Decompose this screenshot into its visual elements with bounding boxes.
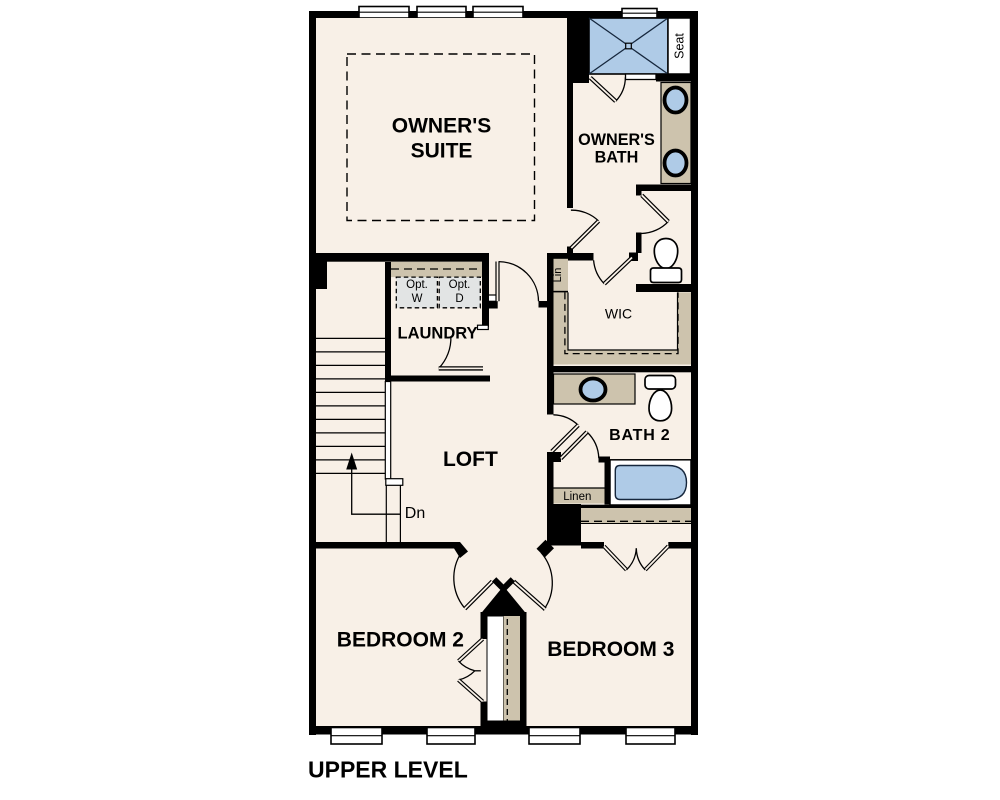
svg-text:BATH 2: BATH 2 <box>609 427 670 444</box>
svg-text:UPPER LEVEL: UPPER LEVEL <box>308 757 468 783</box>
svg-text:Opt.: Opt. <box>406 279 428 291</box>
svg-text:W: W <box>412 293 423 305</box>
svg-text:Opt.: Opt. <box>449 279 471 291</box>
svg-text:OWNER'S: OWNER'S <box>578 131 655 149</box>
svg-text:Dn: Dn <box>405 505 425 522</box>
svg-text:LAUNDRY: LAUNDRY <box>398 325 478 343</box>
svg-text:Lin: Lin <box>552 268 564 283</box>
svg-text:LOFT: LOFT <box>443 448 498 471</box>
svg-text:Linen: Linen <box>563 491 591 503</box>
svg-text:BEDROOM 3: BEDROOM 3 <box>547 638 674 661</box>
svg-text:SUITE: SUITE <box>411 140 473 163</box>
svg-text:BEDROOM 2: BEDROOM 2 <box>337 629 464 652</box>
svg-text:BATH: BATH <box>595 149 639 167</box>
svg-text:OWNER'S: OWNER'S <box>392 115 492 138</box>
svg-text:D: D <box>455 293 463 305</box>
svg-text:WIC: WIC <box>605 306 632 322</box>
svg-text:Seat: Seat <box>673 33 687 59</box>
